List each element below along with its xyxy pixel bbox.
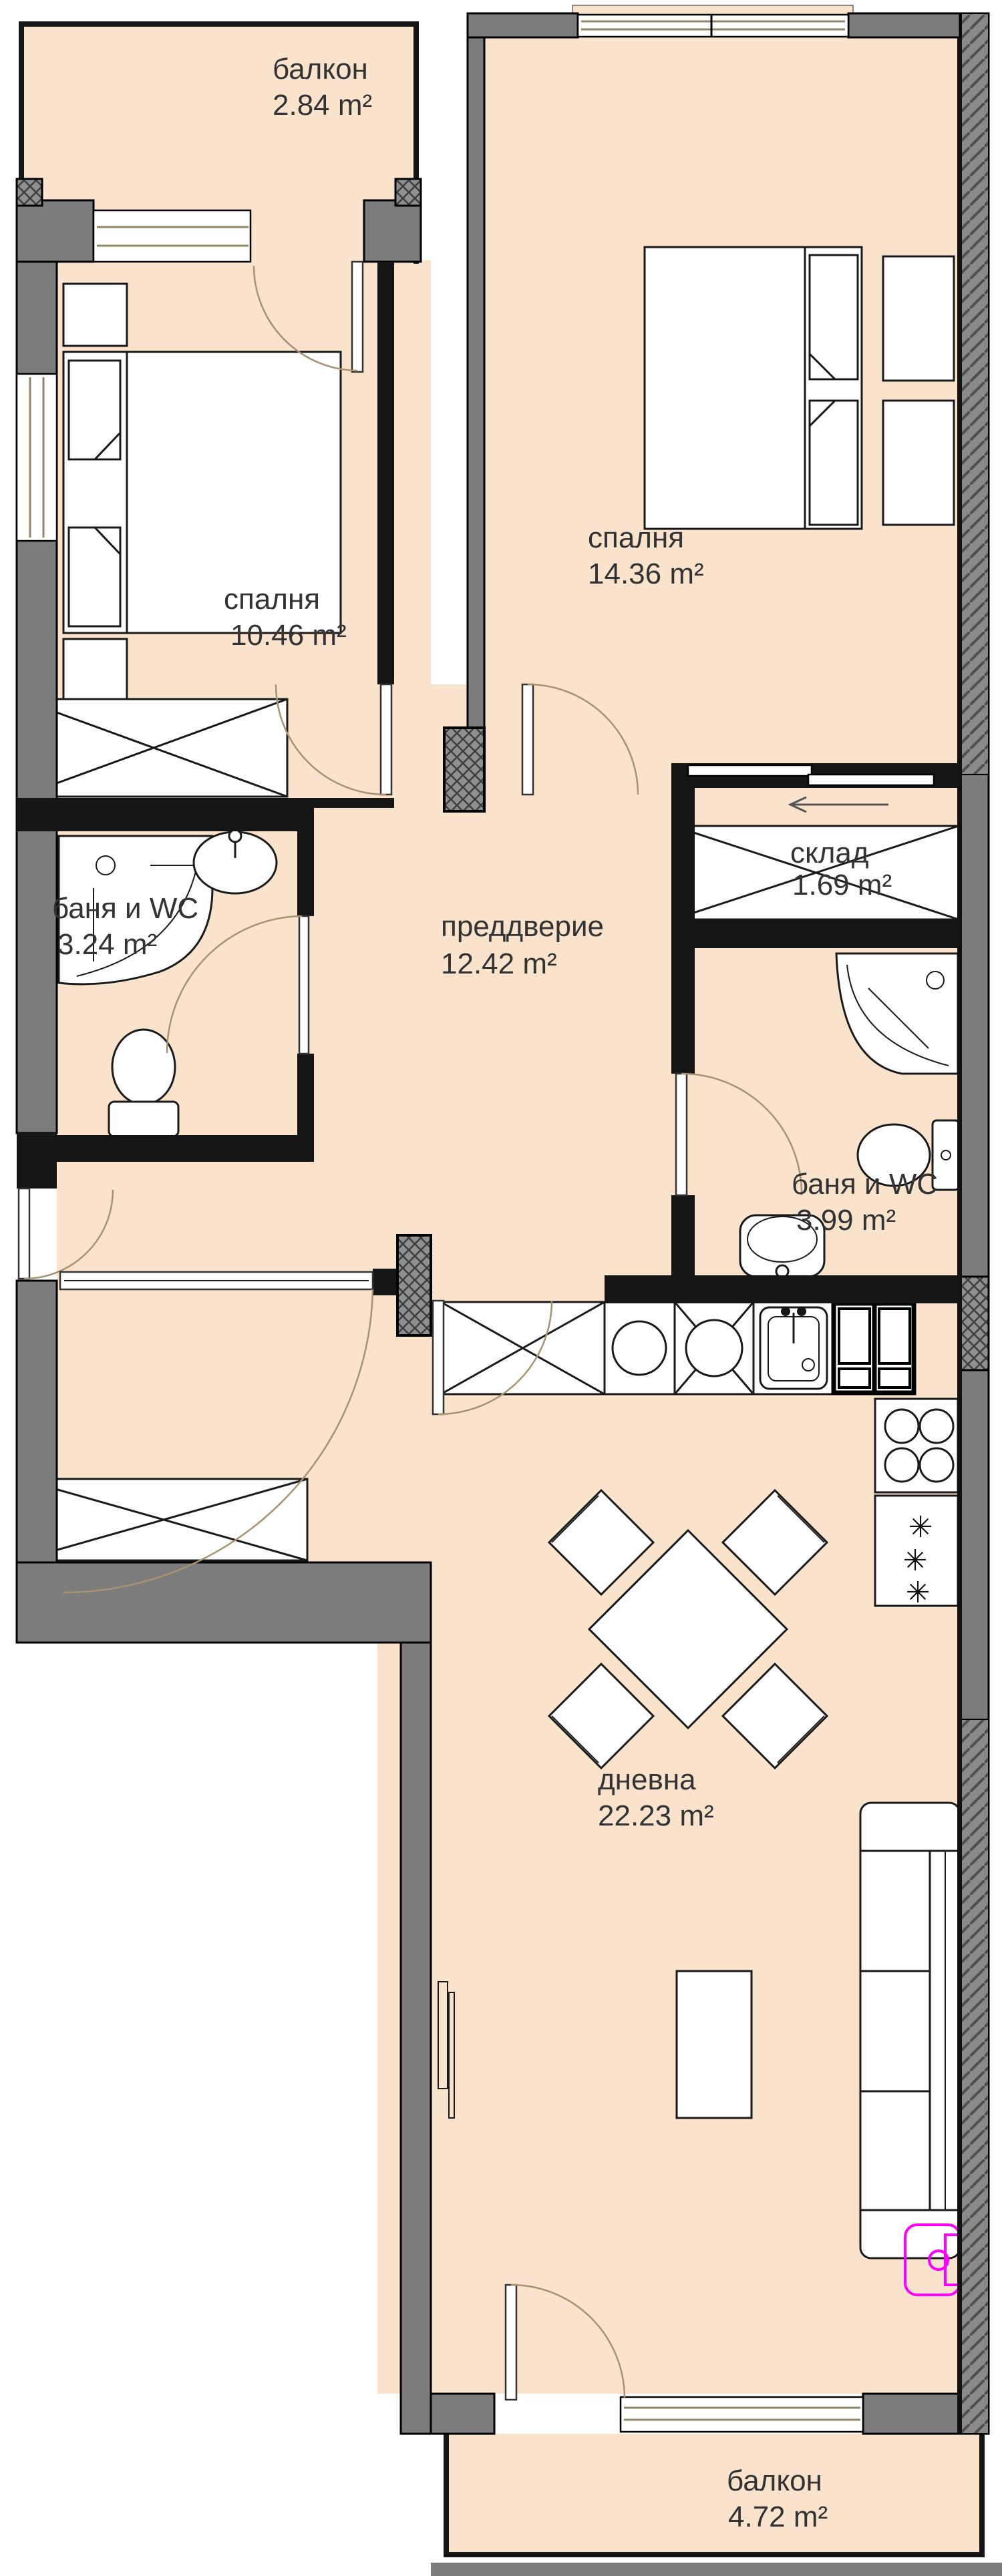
window-bedroom-right bbox=[578, 15, 848, 37]
sink-tap-knob bbox=[229, 830, 241, 842]
wall-living-bottom bbox=[431, 2394, 494, 2434]
door-bath-left bbox=[299, 916, 309, 1054]
label-bath-right-area: 3.99 m² bbox=[796, 1204, 896, 1237]
wall-bath-left-side bbox=[297, 831, 314, 916]
wall-bedrooms-divider bbox=[468, 37, 484, 728]
window-bedroom-left-top bbox=[94, 210, 251, 262]
sliding-door-panel bbox=[688, 765, 812, 776]
nightstand bbox=[63, 639, 127, 701]
dining-set bbox=[549, 1490, 827, 1768]
label-storage: склад bbox=[790, 837, 869, 869]
wall-bath-left-bottom bbox=[17, 1135, 314, 1162]
cabinet-door bbox=[879, 1309, 910, 1363]
label-balcony-bottom: балкон bbox=[727, 2464, 822, 2497]
wall-bottom-left bbox=[17, 1562, 431, 1643]
label-living: дневна bbox=[598, 1763, 696, 1796]
wall-bath-left-side bbox=[297, 1054, 314, 1138]
coffee-table bbox=[677, 1971, 751, 2118]
window-ledge bbox=[572, 5, 853, 15]
wall-balcony-bottom bbox=[364, 200, 421, 262]
label-balcony-top: балкон bbox=[273, 53, 368, 85]
wall-left-upper bbox=[17, 200, 57, 1133]
label-balcony-top-area: 2.84 m² bbox=[273, 89, 372, 122]
label-bedroom-right-area: 14.36 m² bbox=[588, 558, 704, 590]
kitchen-tap-knob bbox=[781, 1307, 790, 1316]
cabinet-door bbox=[839, 1369, 870, 1387]
pillar-balcony bbox=[395, 179, 421, 206]
wall-bedroom-left-right bbox=[377, 262, 394, 684]
wall-balcony-bottom bbox=[17, 200, 94, 262]
wall-top-right bbox=[468, 13, 578, 37]
label-bath-left: баня и WC bbox=[52, 892, 198, 925]
floor-plan-svg: ✳ ✳ ✳ bbox=[0, 0, 1002, 2576]
label-hallway: преддверие bbox=[441, 910, 604, 943]
door-hall-living bbox=[433, 1301, 444, 1414]
pillar-balcony bbox=[17, 179, 42, 206]
door-entry bbox=[19, 1189, 29, 1279]
label-storage-area: 1.69 m² bbox=[792, 869, 892, 901]
floor-plan-page: ✳ ✳ ✳ bbox=[0, 0, 1002, 2576]
toilet-tank bbox=[109, 1102, 178, 1136]
wall-living-left bbox=[401, 1643, 431, 2434]
door-balcony-living bbox=[506, 2285, 516, 2400]
label-bedroom-left-area: 10.46 m² bbox=[230, 619, 347, 652]
door-bedroom-left bbox=[381, 684, 391, 795]
heater-icon: ✳ bbox=[908, 1511, 933, 1544]
door-bedroom-right bbox=[522, 684, 533, 795]
nightstand bbox=[883, 401, 954, 525]
label-bedroom-right: спалня bbox=[588, 521, 684, 554]
wall-bath-right-bottom bbox=[605, 1275, 960, 1303]
label-bath-left-area: 3.24 m² bbox=[57, 928, 157, 961]
heater-icon: ✳ bbox=[903, 1544, 928, 1577]
floor-balcony-bottom bbox=[446, 2434, 982, 2555]
wall-storage-bottom bbox=[671, 919, 960, 948]
wall-left-lower bbox=[17, 1281, 57, 1576]
wall-right-hatched bbox=[960, 13, 989, 775]
label-living-area: 22.23 m² bbox=[598, 1799, 714, 1832]
wall-top-right bbox=[848, 13, 960, 37]
window-living bbox=[621, 2397, 863, 2432]
sliding-door-panel bbox=[808, 775, 934, 785]
wall-living-bottom bbox=[863, 2394, 960, 2434]
wall-bath-right-left bbox=[671, 1195, 695, 1279]
label-bedroom-left: спалня bbox=[224, 583, 320, 616]
vent-shaft bbox=[960, 1277, 989, 1370]
pillar-kitchen bbox=[397, 1235, 431, 1335]
wall-right-hatched bbox=[960, 1719, 989, 2434]
kitchen-tap-knob bbox=[797, 1307, 806, 1316]
heater-icon: ✳ bbox=[906, 1576, 931, 1609]
wall-bath-left-top bbox=[17, 798, 314, 831]
wall-bedroom-bottom bbox=[314, 798, 394, 808]
cabinet-door bbox=[879, 1369, 910, 1387]
pillar-hall bbox=[444, 728, 484, 811]
cabinet-door bbox=[839, 1309, 870, 1363]
toilet-bowl bbox=[112, 1030, 175, 1104]
wall-right-edge bbox=[957, 13, 962, 2434]
label-bath-right: баня и WC bbox=[792, 1168, 938, 1201]
door-bath-right bbox=[676, 1074, 687, 1195]
window-bedroom-left-side bbox=[17, 374, 57, 541]
label-balcony-bottom-area: 4.72 m² bbox=[728, 2501, 828, 2533]
lower-slab bbox=[431, 2563, 1002, 2576]
label-hallway-area: 12.42 m² bbox=[441, 947, 557, 980]
oven-icon bbox=[686, 1320, 742, 1376]
door-balcony-bedroom-left bbox=[352, 262, 363, 372]
nightstand bbox=[63, 284, 127, 346]
nightstand bbox=[883, 256, 954, 381]
